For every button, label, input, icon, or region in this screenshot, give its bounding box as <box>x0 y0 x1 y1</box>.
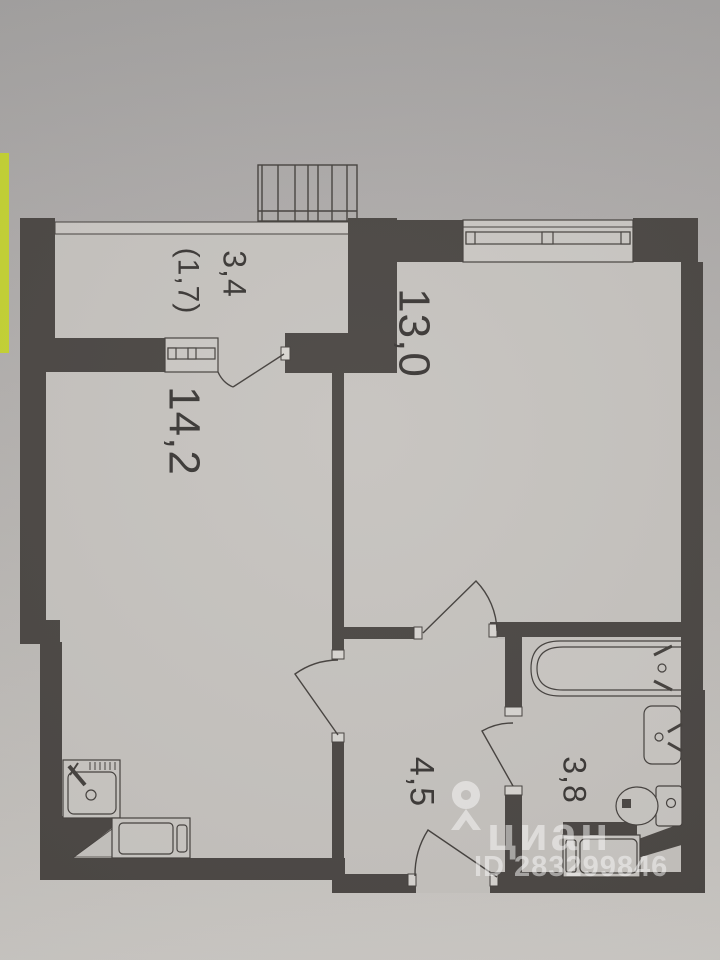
floor-plan-drawing <box>0 0 720 960</box>
balcony-railing-icon <box>258 165 357 221</box>
balcony-outer-wall <box>55 222 358 234</box>
watermark-listing-id: ID 283299846 <box>474 851 668 884</box>
toilet-icon <box>616 786 682 826</box>
washbasin-icon <box>644 706 682 764</box>
kitchen-sink-icon <box>63 760 120 818</box>
room-right-area-label: 13,0 <box>391 288 436 378</box>
floor-plan-photo: 3,4 (1,7) 14,2 13,0 4,5 3,8 циан ID 2832… <box>0 0 720 960</box>
stove-icon <box>112 818 190 858</box>
scan-accent-strip <box>0 153 9 353</box>
balcony-area-label: 3,4 <box>218 250 251 297</box>
room-left-area-label: 14,2 <box>161 386 206 476</box>
balcony-window-icon <box>165 338 218 372</box>
window-icon <box>463 220 633 262</box>
balcony-reduced-area-label: (1,7) <box>172 248 203 315</box>
bathtub-icon <box>531 641 681 696</box>
hallway-area-label: 4,5 <box>404 757 439 807</box>
bathroom-area-label: 3,8 <box>558 756 591 803</box>
map-pin-icon <box>448 780 484 832</box>
